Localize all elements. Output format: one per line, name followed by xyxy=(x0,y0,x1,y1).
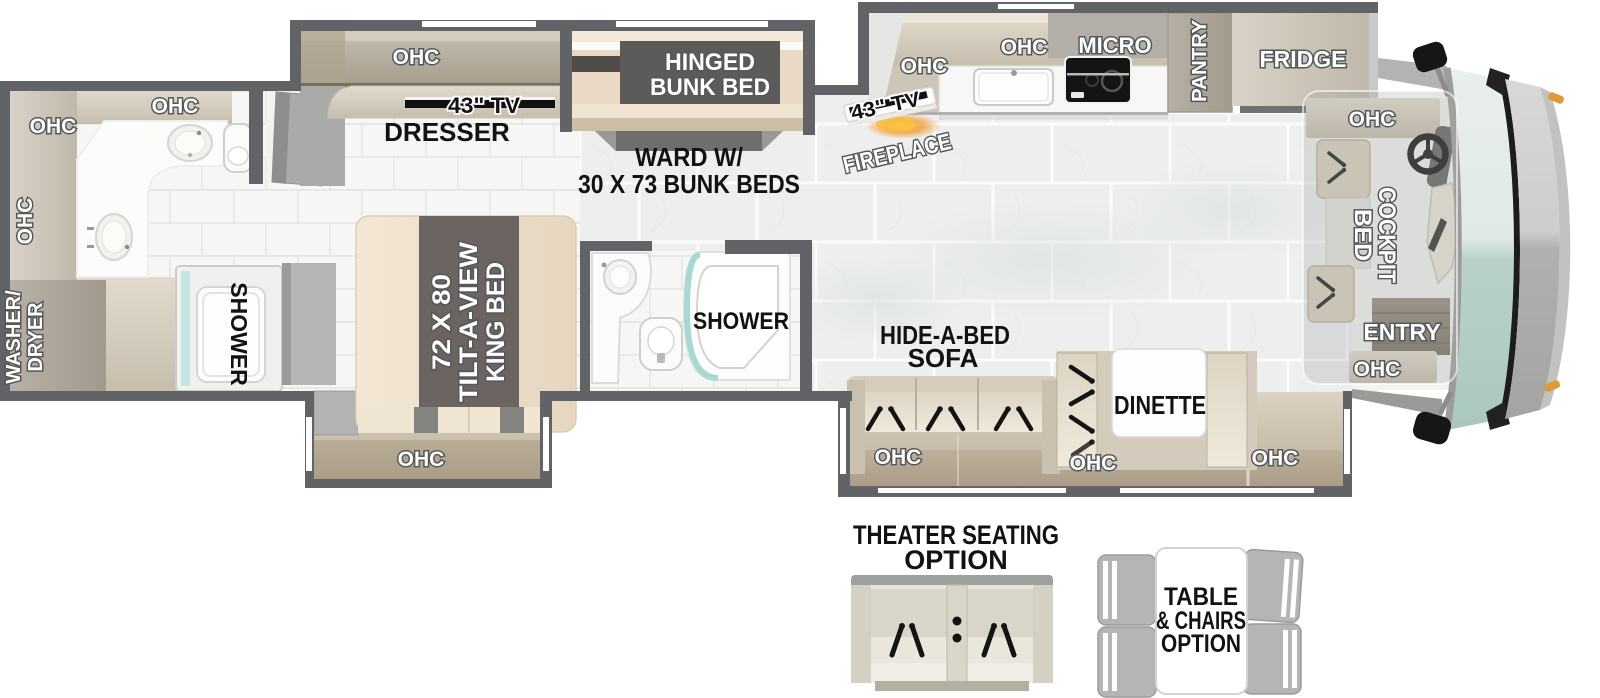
svg-text:TILT-A-VIEW: TILT-A-VIEW xyxy=(455,242,483,402)
svg-text:43" TV: 43" TV xyxy=(448,93,520,118)
svg-text:72 X 80: 72 X 80 xyxy=(428,274,456,370)
svg-text:OHC: OHC xyxy=(901,55,948,78)
svg-text:OHC: OHC xyxy=(875,446,922,469)
svg-text:BUNK BED: BUNK BED xyxy=(650,74,770,101)
svg-text:SHOWER: SHOWER xyxy=(693,308,789,335)
svg-text:OHC: OHC xyxy=(152,95,199,118)
svg-text:OHC: OHC xyxy=(30,115,77,138)
svg-text:OHC: OHC xyxy=(393,46,440,69)
svg-text:FRIDGE: FRIDGE xyxy=(1260,46,1347,72)
svg-text:HINGED: HINGED xyxy=(665,49,755,76)
svg-text:WARD W/: WARD W/ xyxy=(635,142,743,172)
svg-text:OHC: OHC xyxy=(1354,358,1401,381)
svg-text:SHOWER: SHOWER xyxy=(226,282,252,386)
svg-text:KING BED: KING BED xyxy=(482,262,510,382)
svg-text:DRYER: DRYER xyxy=(25,302,47,372)
svg-text:OPTION: OPTION xyxy=(1161,630,1241,658)
svg-text:OHC: OHC xyxy=(1001,36,1048,59)
svg-text:OHC: OHC xyxy=(1349,108,1396,131)
svg-text:DINETTE: DINETTE xyxy=(1114,390,1206,420)
svg-text:OHC: OHC xyxy=(1070,452,1117,475)
svg-text:PANTRY: PANTRY xyxy=(1189,19,1211,102)
svg-text:OHC: OHC xyxy=(398,448,445,471)
svg-text:DRESSER: DRESSER xyxy=(384,117,510,147)
svg-text:MICRO: MICRO xyxy=(1078,33,1151,58)
svg-text:OHC: OHC xyxy=(14,198,37,245)
svg-text:OHC: OHC xyxy=(1252,447,1299,470)
svg-text:ENTRY: ENTRY xyxy=(1363,319,1440,345)
svg-text:OPTION: OPTION xyxy=(904,545,1008,575)
svg-text:WASHER/: WASHER/ xyxy=(3,290,25,384)
svg-text:BED: BED xyxy=(1349,209,1376,261)
svg-text:30 X 73 BUNK BEDS: 30 X 73 BUNK BEDS xyxy=(578,169,800,199)
svg-text:SOFA: SOFA xyxy=(908,343,979,373)
svg-text:COCKPIT: COCKPIT xyxy=(1373,187,1400,283)
